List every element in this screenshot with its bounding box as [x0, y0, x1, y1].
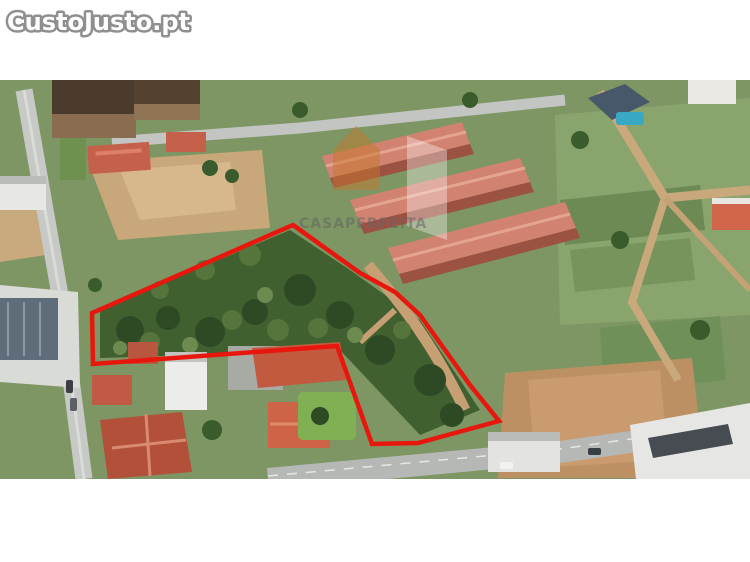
swimming-pool	[616, 112, 644, 125]
brand-watermark: CustoJusto.pt	[2, 2, 232, 44]
industrial-building-west	[0, 285, 80, 388]
aerial-photo	[0, 80, 750, 479]
agency-watermark-text: CASAPERFEITA	[299, 216, 459, 232]
brand-watermark-text: CustoJusto.pt	[7, 8, 190, 36]
